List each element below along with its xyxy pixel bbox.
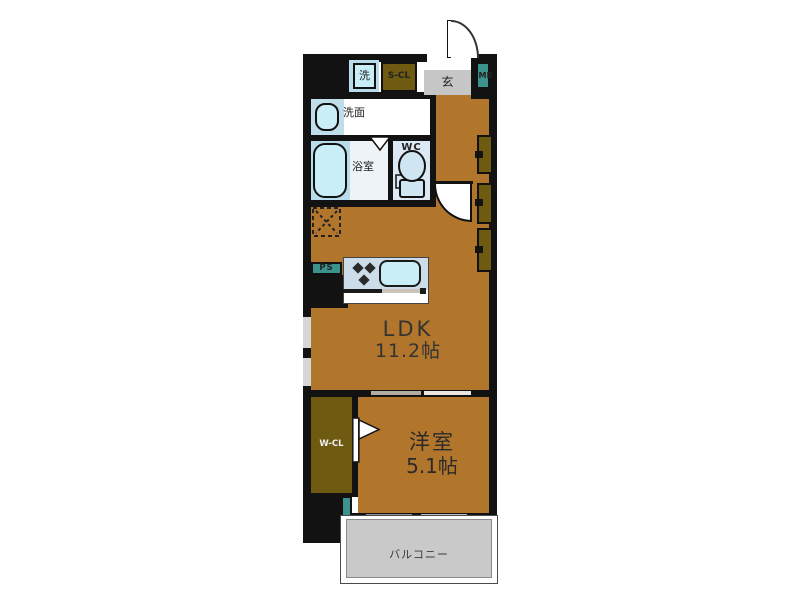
kitchen-counter-edge-dark bbox=[343, 289, 382, 293]
walk-in-closet: W-CL bbox=[311, 397, 352, 493]
meter-box-label: MB bbox=[479, 71, 488, 80]
storage-closet-label: S-CL bbox=[388, 72, 411, 82]
ldk-label: LDK 11.2帖 bbox=[353, 313, 463, 367]
window-left-upper bbox=[303, 317, 311, 348]
pipe-space: PS bbox=[311, 262, 342, 275]
kitchen-counter-edge-dot bbox=[420, 288, 426, 294]
window-right-2-handle bbox=[475, 199, 483, 206]
window-right-1-handle bbox=[475, 151, 483, 158]
balcony-label: バルコニー bbox=[389, 549, 449, 561]
sliding-door-ldk-left-panel bbox=[371, 391, 421, 395]
kitchen-counter-edge-light bbox=[382, 289, 420, 293]
entrance-label: 玄 bbox=[441, 76, 453, 89]
block-bottom-left-lower bbox=[303, 520, 342, 543]
window-right-3-handle bbox=[475, 246, 483, 253]
wall-below-mb bbox=[474, 89, 497, 99]
meter-box: MB bbox=[476, 62, 490, 89]
floor-plan: 洗 S-CL 玄 MB 洗面 浴室 WC PS bbox=[0, 0, 800, 600]
bathroom-label: 浴室 bbox=[352, 161, 374, 173]
washer-box: 洗 bbox=[353, 63, 376, 89]
western-room-size: 5.1帖 bbox=[406, 455, 458, 477]
refrigerator-space bbox=[311, 206, 343, 239]
western-room-name: 洋室 bbox=[409, 431, 455, 454]
washroom-label: 洗面 bbox=[343, 107, 365, 119]
stove-and-sink bbox=[344, 258, 428, 290]
block-below-ps bbox=[303, 275, 348, 308]
pipe-space-label: PS bbox=[319, 264, 333, 273]
wall-below-utility bbox=[303, 92, 432, 99]
bottom-shaft bbox=[343, 498, 350, 516]
toilet bbox=[394, 149, 430, 199]
wall-right bbox=[489, 54, 497, 520]
window-left-lower bbox=[303, 358, 311, 386]
western-room-label: 洋室 5.1帖 bbox=[377, 424, 487, 484]
ldk-name: LDK bbox=[383, 318, 434, 341]
wall-left-lower bbox=[303, 397, 311, 493]
sliding-door-ldk-right-panel bbox=[424, 391, 471, 395]
bathtub bbox=[313, 143, 347, 198]
washer-label: 洗 bbox=[359, 70, 370, 82]
entrance-door-arc bbox=[451, 20, 479, 58]
ldk-size: 11.2帖 bbox=[375, 341, 441, 362]
entrance-floor: 玄 bbox=[424, 70, 471, 95]
washbasin-sink bbox=[315, 103, 339, 131]
bathroom-door-mark bbox=[368, 135, 392, 153]
walk-in-closet-label: W-CL bbox=[319, 440, 343, 449]
wall-wcl-right-lower bbox=[352, 462, 358, 497]
balcony-floor: バルコニー bbox=[346, 519, 492, 578]
storage-closet: S-CL bbox=[381, 62, 417, 92]
